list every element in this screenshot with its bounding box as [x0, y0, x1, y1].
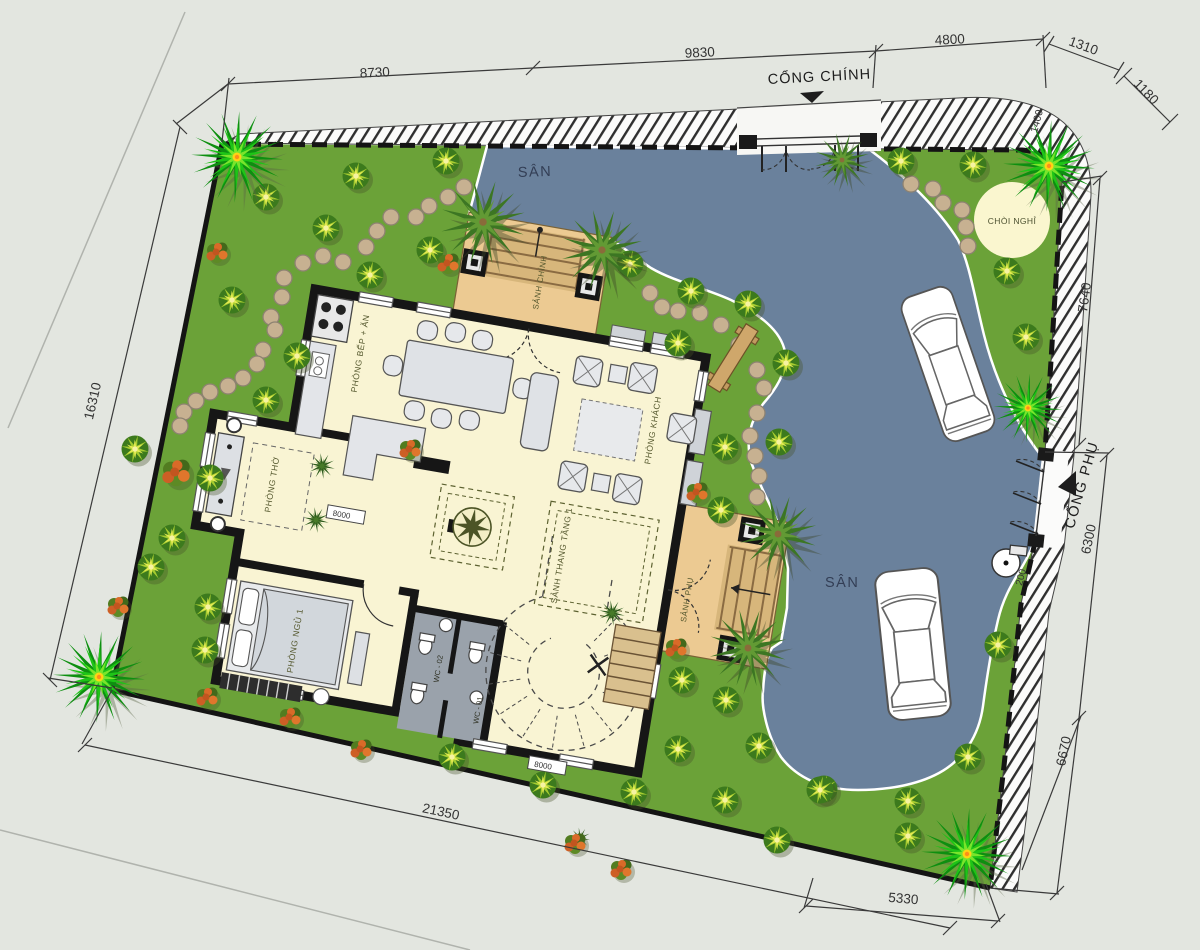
svg-text:8730: 8730 [359, 64, 390, 81]
svg-text:9830: 9830 [684, 44, 715, 61]
svg-text:SÂN: SÂN [825, 574, 859, 591]
svg-text:CHÒI NGHỈ: CHÒI NGHỈ [988, 215, 1037, 226]
svg-text:4800: 4800 [934, 31, 965, 48]
svg-text:5330: 5330 [888, 890, 919, 908]
svg-text:SÂN: SÂN [518, 163, 553, 181]
